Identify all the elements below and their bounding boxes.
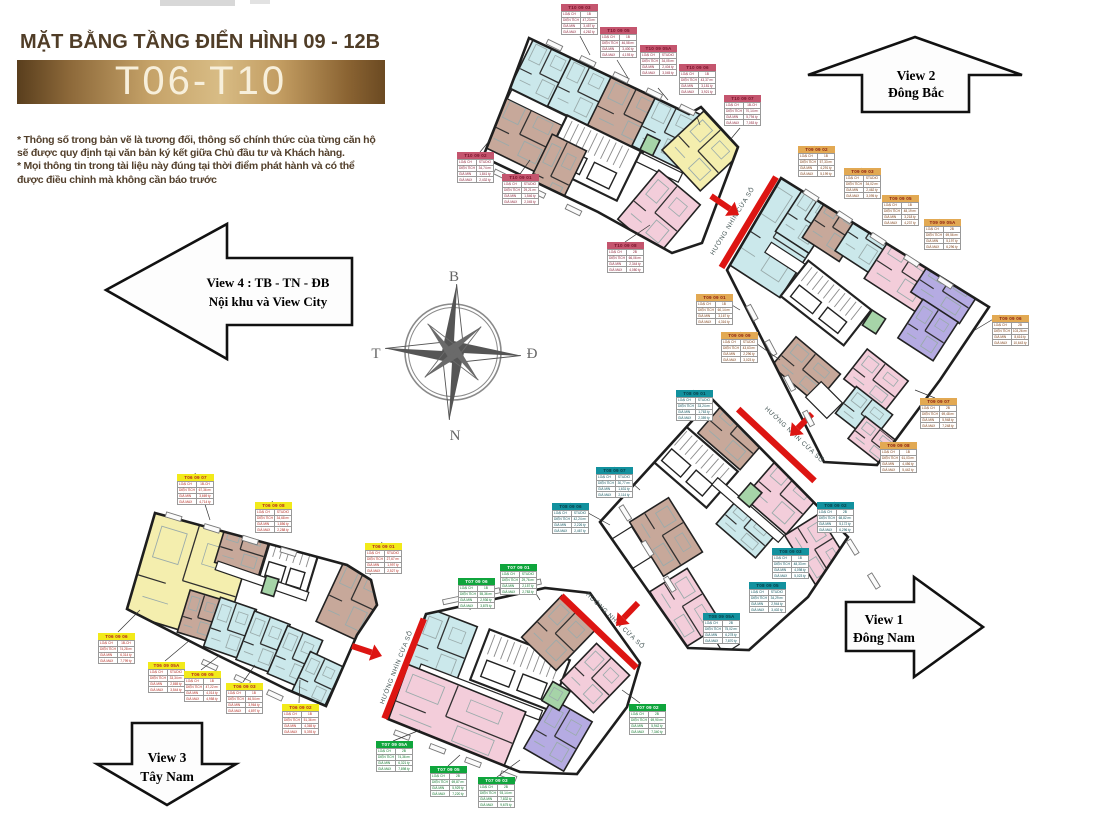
svg-text:N: N — [450, 428, 461, 444]
svg-text:View 4 : TB - TN - ĐB: View 4 : TB - TN - ĐB — [207, 275, 330, 290]
svg-text:Nội khu và View City: Nội khu và View City — [209, 294, 328, 309]
svg-text:T: T — [371, 346, 380, 362]
svg-text:View 1: View 1 — [865, 612, 904, 627]
svg-text:Đ: Đ — [527, 346, 538, 362]
svg-text:Đông Nam: Đông Nam — [853, 630, 916, 645]
svg-text:View 2: View 2 — [897, 68, 936, 83]
svg-text:View 3: View 3 — [148, 750, 187, 765]
svg-text:Tây Nam: Tây Nam — [140, 769, 194, 784]
svg-text:B: B — [449, 269, 459, 285]
svg-text:Đông Bắc: Đông Bắc — [888, 85, 944, 100]
